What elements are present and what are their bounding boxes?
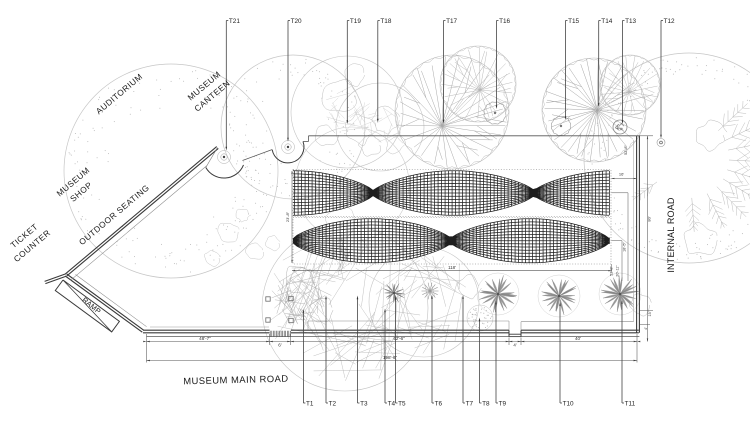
svg-text:T11: T11 [625,401,636,408]
svg-text:T14: T14 [601,18,612,25]
svg-text:6': 6' [278,342,282,347]
svg-text:118': 118' [448,265,456,270]
svg-text:T2: T2 [329,401,337,408]
svg-text:4': 4' [644,327,648,330]
svg-text:20'-11": 20'-11" [616,265,620,277]
svg-text:T6: T6 [435,401,443,408]
svg-text:40': 40' [575,336,581,341]
svg-text:T21: T21 [229,18,240,25]
svg-text:T13: T13 [625,18,636,25]
svg-text:T15: T15 [568,18,579,25]
svg-text:18'-5": 18'-5" [622,242,626,252]
svg-text:T17: T17 [446,18,457,25]
svg-text:T7: T7 [466,401,474,408]
svg-text:4': 4' [513,343,516,348]
svg-text:42'-6": 42'-6" [393,336,405,341]
svg-text:48'-7": 48'-7" [199,336,211,341]
svg-text:T19: T19 [350,18,361,25]
svg-text:T5: T5 [398,401,406,408]
svg-text:T4: T4 [388,401,396,408]
svg-text:23'-8": 23'-8" [285,211,290,222]
svg-text:T3: T3 [360,401,368,408]
svg-text:T12: T12 [664,18,675,25]
svg-text:52'-8": 52'-8" [610,266,614,276]
svg-text:T18: T18 [380,18,391,25]
svg-text:T20: T20 [291,18,302,25]
svg-text:15': 15' [648,311,652,316]
svg-text:T9: T9 [499,401,507,408]
svg-text:INTERNAL ROAD: INTERNAL ROAD [666,197,676,273]
svg-text:16': 16' [619,172,624,177]
svg-text:80': 80' [647,216,652,221]
svg-text:T8: T8 [482,401,490,408]
svg-text:T1: T1 [306,401,314,408]
svg-text:T10: T10 [563,401,574,408]
svg-text:52'-8": 52'-8" [624,145,628,155]
svg-text:T16: T16 [499,18,510,25]
